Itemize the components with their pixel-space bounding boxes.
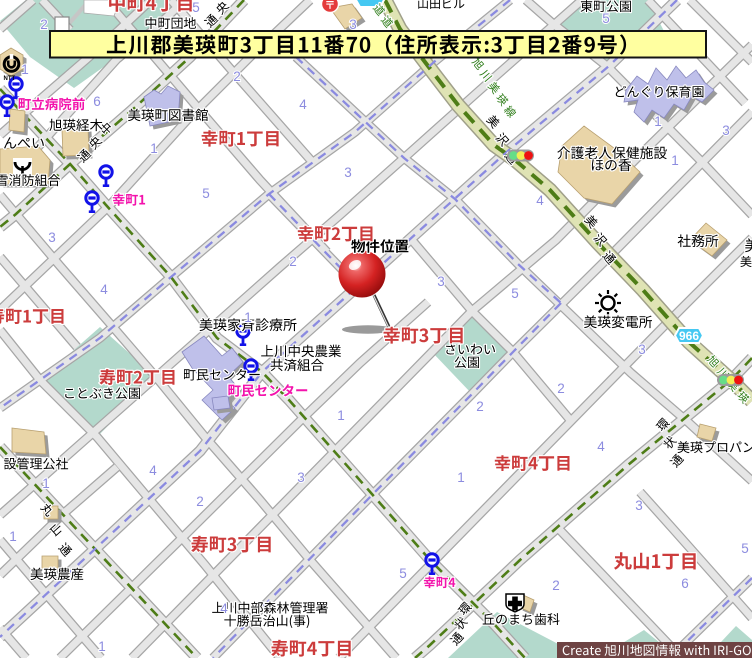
svg-text:4: 4 <box>220 601 228 616</box>
svg-text:4: 4 <box>299 97 307 112</box>
svg-text:1: 1 <box>337 408 345 423</box>
svg-text:5: 5 <box>192 0 200 15</box>
svg-text:1: 1 <box>98 639 106 654</box>
svg-text:NTT: NTT <box>4 76 16 82</box>
svg-text:2: 2 <box>552 578 560 593</box>
svg-text:3: 3 <box>344 165 352 180</box>
svg-text:3: 3 <box>722 123 730 138</box>
svg-text:2: 2 <box>557 381 565 396</box>
svg-text:1: 1 <box>21 62 29 77</box>
svg-text:1: 1 <box>671 153 679 168</box>
svg-text:3: 3 <box>297 470 305 485</box>
svg-text:1: 1 <box>42 476 50 491</box>
svg-text:5: 5 <box>602 11 610 26</box>
svg-text:5: 5 <box>511 286 519 301</box>
svg-text:1: 1 <box>9 529 17 544</box>
svg-text:966: 966 <box>679 329 699 343</box>
svg-text:6: 6 <box>93 94 101 109</box>
svg-text:5: 5 <box>202 186 210 201</box>
svg-text:3: 3 <box>635 498 643 513</box>
svg-text:3: 3 <box>48 230 56 245</box>
svg-text:5: 5 <box>399 566 407 581</box>
svg-text:2: 2 <box>233 69 241 84</box>
svg-text:2: 2 <box>476 399 484 414</box>
svg-text:4: 4 <box>149 463 157 478</box>
svg-text:2: 2 <box>196 494 204 509</box>
svg-text:1: 1 <box>654 114 662 129</box>
svg-text:3: 3 <box>349 17 357 32</box>
svg-text:4: 4 <box>597 439 605 454</box>
svg-text:1: 1 <box>244 310 252 325</box>
svg-text:1: 1 <box>457 470 465 485</box>
svg-text:6: 6 <box>681 576 689 591</box>
svg-text:3: 3 <box>437 274 445 289</box>
svg-text:2: 2 <box>289 254 297 269</box>
svg-text:5: 5 <box>741 541 749 556</box>
svg-text:1: 1 <box>150 141 158 156</box>
svg-text:4: 4 <box>536 193 544 208</box>
svg-text:4: 4 <box>100 282 108 297</box>
svg-text:2: 2 <box>40 17 48 32</box>
svg-text:3: 3 <box>638 342 646 357</box>
